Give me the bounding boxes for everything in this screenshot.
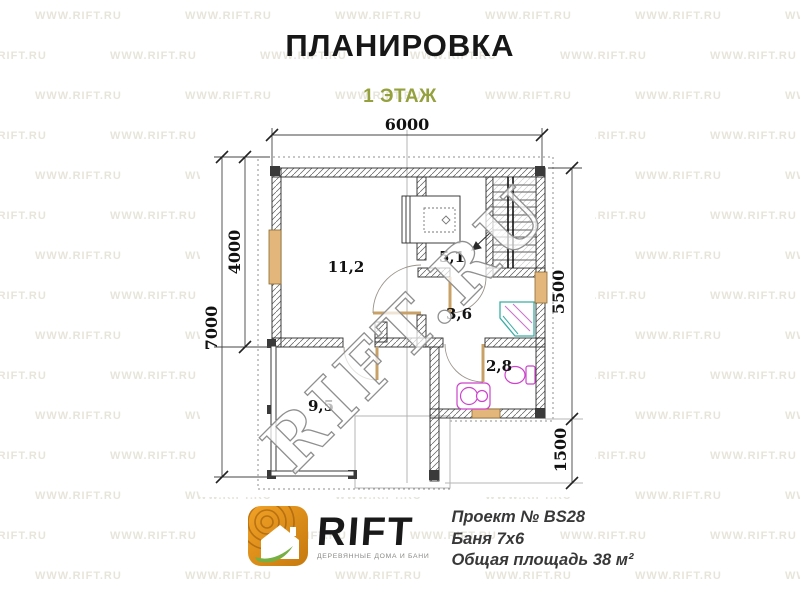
sink xyxy=(457,383,490,409)
project-number: Проект № BS28 xyxy=(451,507,633,529)
footer: RIFT ДЕРЕВЯННЫЕ ДОМА И БАНИ Проект № BS2… xyxy=(247,505,633,572)
project-area: Общая площадь 38 м² xyxy=(451,550,633,572)
dim-left-outer: 7000 xyxy=(202,306,221,351)
rift-logo-icon xyxy=(247,505,309,567)
chimney-icon xyxy=(290,527,296,536)
room-label-wc: 2,8 xyxy=(486,357,512,375)
dim-right-lower: 1500 xyxy=(551,428,570,473)
project-info: Проект № BS28 Баня 7х6 Общая площадь 38 … xyxy=(451,507,633,572)
dim-right-upper: 5500 xyxy=(549,270,568,315)
window-wc xyxy=(472,409,500,418)
logo-name: RIFT xyxy=(316,513,431,551)
window-right xyxy=(535,272,547,303)
rift-logo: RIFT ДЕРЕВЯННЫЕ ДОМА И БАНИ xyxy=(247,505,429,567)
window-left xyxy=(269,230,281,284)
dim-top: 6000 xyxy=(385,115,430,134)
project-type: Баня 7х6 xyxy=(451,529,633,551)
wall-bottom-right xyxy=(485,338,545,347)
page-title: ПЛАНИРОВКА xyxy=(0,28,800,64)
dim-left-inner: 4000 xyxy=(225,230,244,275)
room-label-rest: 11,2 xyxy=(328,258,365,276)
floor-label: 1 ЭТАЖ xyxy=(0,86,800,108)
